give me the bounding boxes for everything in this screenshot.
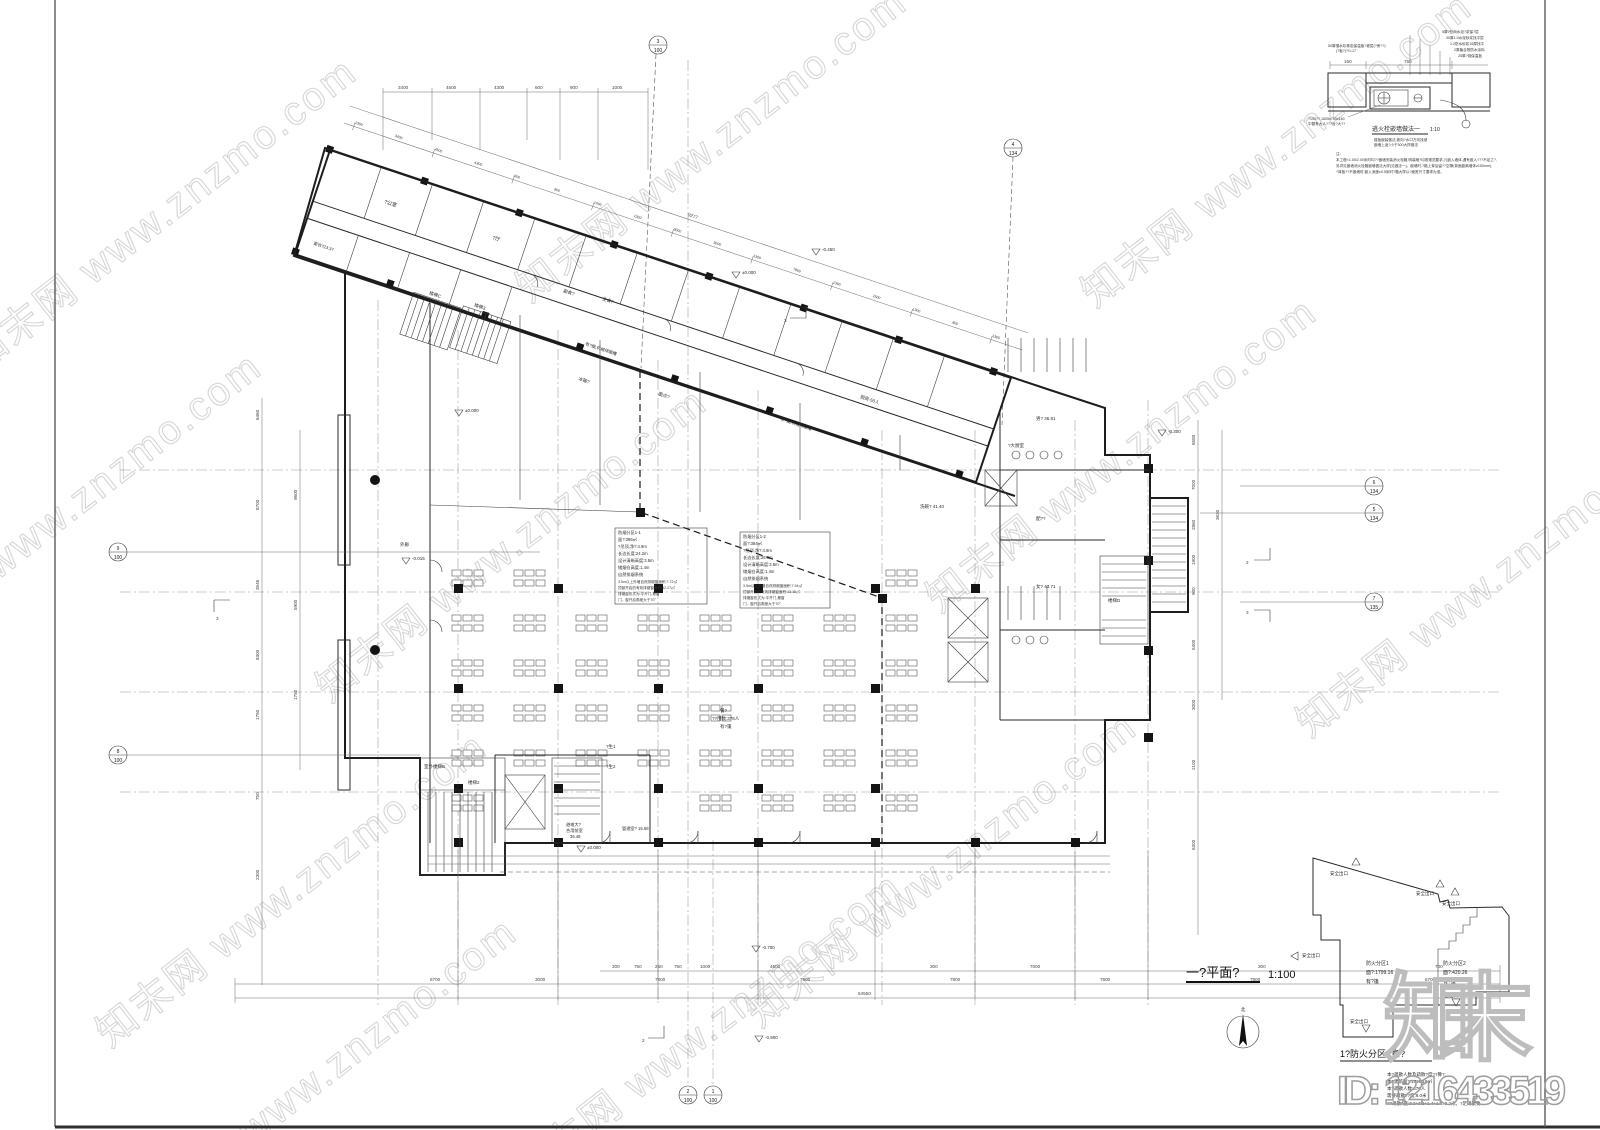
svg-text:750: 750 [1404,59,1412,64]
svg-text:9: 9 [117,546,120,552]
svg-text:面?:384㎡: 面?:384㎡ [743,540,763,547]
bubble: 3100 [649,36,667,54]
room-label: 男? 36.81 [1036,416,1056,422]
watermark-text: 知末网 www.znzmo.com [738,704,1145,1036]
svg-text:2100: 2100 [1191,759,1196,770]
svg-text:2860: 2860 [1191,519,1196,530]
room-label: 避难大? [566,821,582,828]
topleft-dim-labels: 3400 4500 4300 600 900 1000 [398,85,623,90]
svg-text:面?:386㎡: 面?:386㎡ [618,536,638,543]
room-label: 洗碗? 41.40 [920,503,945,510]
svg-text:储烟仓高度:1.4m: 储烟仓高度:1.4m [743,568,775,575]
svg-text:1: 1 [712,1089,715,1095]
svg-text:自然排烟系统: 自然排烟系统 [618,571,643,578]
svg-text:门、窗开启角度大于70°: 门、窗开启角度大于70° [618,597,656,602]
svg-text:30厚1:3水泥砂浆找平层: 30厚1:3水泥砂浆找平层 [1446,35,1484,40]
svg-text:冰箱?: 冰箱? [577,375,591,385]
svg-text:100: 100 [709,1098,718,1104]
svg-text:2600: 2600 [872,294,881,300]
detail-title: 逃火栓嵌墙做法一 1:10 [1372,125,1440,134]
svg-text:4300: 4300 [474,161,483,167]
svg-text:?吊顶,净?:4.9m: ?吊顶,净?:4.9m [618,543,647,550]
svg-text:100: 100 [114,555,123,561]
znzmo-logo: 知末 [1383,966,1533,1073]
svg-text:7: 7 [1373,596,1376,602]
svg-text:300: 300 [930,964,938,969]
overall-dim: 54550 [858,991,871,996]
svg-text:250: 250 [655,964,663,969]
svg-text:1300: 1300 [753,254,762,260]
svg-text:2: 2 [642,1038,645,1043]
svg-text:1000: 1000 [700,964,711,969]
svg-text:600: 600 [514,174,521,180]
bubble: 9100 [109,543,127,561]
svg-text:长边长度:28.8m: 长边长度:28.8m [743,554,773,561]
svg-text:750: 750 [634,964,642,969]
svg-text:楼梯3: 楼梯3 [473,301,487,311]
svg-text:750: 750 [674,964,682,969]
svg-text:安全出口: 安全出口 [1350,1018,1368,1025]
svg-text:2: 2 [1246,560,1249,565]
svg-text:?背板??不嵌墙时,嵌入深度≤0.5米时?箱大样以?面宽尺寸: ?背板??不嵌墙时,嵌入深度≤0.5米时?箱大样以?面宽尺寸要求为准。 [1336,169,1444,174]
room-label: ?公室 [383,198,397,209]
svg-text:有?篷: 有?篷 [720,723,732,730]
svg-text:3546: 3546 [255,579,260,590]
svg-text:安全出口: 安全出口 [1330,870,1348,877]
svg-text:5: 5 [1373,507,1376,513]
svg-text:-0.015: -0.015 [412,556,425,561]
room-label: 管理室? 15.68 [622,825,649,832]
svg-text:600: 600 [535,85,543,90]
svg-text:1300: 1300 [992,334,1001,340]
bubble: 6134 [1365,477,1383,495]
svg-text:顶部开启的有效排烟窗面积:12.27㎡: 顶部开启的有效排烟窗面积:12.27㎡ [618,585,675,590]
svg-text:900: 900 [554,187,561,193]
top-dim-labels: 13003400 45004300 600900 16001300 300030… [354,103,1006,341]
svg-text:50厚憎水珍珠岩保温板?坡层(?房??): 50厚憎水珍珠岩保温板?坡层(?房??) [1328,43,1386,48]
room-label: 更衣?23.37 [312,240,335,254]
svg-text:7000: 7000 [1030,964,1041,969]
svg-text:6300: 6300 [1191,839,1196,850]
bubble: 1100 [704,1086,722,1104]
svg-text:8700: 8700 [255,499,260,510]
room-label: 女? 43.71 [1036,583,1056,590]
svg-text:注:: 注: [1336,151,1341,156]
svg-text:25厚?烧保温板: 25厚?烧保温板 [1458,53,1482,58]
svg-text:4500: 4500 [434,147,443,153]
svg-text:储烟仓高度:1.4m: 储烟仓高度:1.4m [618,564,650,571]
svg-text:900: 900 [1191,587,1196,595]
svg-text:防烟分区1-2: 防烟分区1-2 [743,533,766,540]
svg-text:4500: 4500 [446,85,457,90]
svg-text:3630: 3630 [1215,509,1220,520]
svg-text:1750: 1750 [255,709,260,720]
svg-text:3000: 3000 [713,241,722,247]
bubble: 8100 [109,746,127,764]
svg-text:2: 2 [687,1089,690,1095]
svg-text:100: 100 [114,758,123,764]
room-label: ?生1 [606,743,616,749]
svg-text:7800: 7800 [1100,977,1111,982]
svg-text:1300: 1300 [832,281,841,287]
svg-text:8300: 8300 [255,649,260,660]
svg-text:-0.900: -0.900 [765,1035,778,1040]
svg-text:6700: 6700 [430,977,441,982]
room-label: 36.48 [570,834,581,839]
detail-note: 楼板嵌装做法,坡向?水口方向找坡 [1374,137,1428,142]
room-label: ?生2 [606,763,616,769]
svg-text:6580: 6580 [1191,434,1196,445]
svg-text:3.5m以上外墙自然排烟窗面积:7.72㎡: 3.5m以上外墙自然排烟窗面积:7.72㎡ [618,579,678,584]
wing-stairs [400,292,511,363]
svg-text:7800: 7800 [793,267,802,273]
right-dim-labels: 6580 7000 2860 1900 900 5400 3000 2100 6… [1191,434,1220,850]
svg-text:-0.450: -0.450 [822,247,835,252]
bubble: 5134 [1365,504,1383,522]
svg-text:7000: 7000 [1191,479,1196,490]
svg-text:135: 135 [1370,605,1379,611]
svg-text:?吊顶,净?:4.9m: ?吊顶,净?:4.9m [743,547,772,554]
svg-text:设计清晰高度:3.5m: 设计清晰高度:3.5m [618,557,654,564]
svg-text:1900: 1900 [1191,554,1196,565]
svg-text:1750: 1750 [293,689,298,700]
svg-text:??用数:376人: ??用数:376人 [712,715,740,722]
watermark-text: 知末网 www.znzmo.com [1288,414,1600,746]
svg-text:外廊: 外廊 [400,541,409,548]
detail-paragraph: 注: 本工程<1.00/2.00米时均??嵌墙安装消火栓箱,明装暗?均按规范要求… [1336,151,1497,174]
svg-text:6460: 6460 [255,409,260,420]
svg-text:另详见嵌墙消火栓箱嵌墙做法大样(见做法一)。嵌墙时,?箱上背: 另详见嵌墙消火栓箱嵌墙做法大样(见做法一)。嵌墙时,?箱上背后留??空隙(背面距… [1336,163,1492,168]
svg-text:1:100: 1:100 [1268,969,1296,981]
room-label: ?大厨室 [1008,442,1025,449]
svg-text:一?平面?: 一?平面? [1186,965,1239,980]
svg-text:7800: 7800 [800,977,811,982]
svg-text:-0.300: -0.300 [1168,429,1181,434]
svg-text:134: 134 [1009,151,1018,157]
svg-text:3: 3 [216,616,219,621]
bubble: 2100 [679,1086,697,1104]
elevation-markers: ±0.000 ±0.000 -0.450 -0.015 -0.300 -0.70… [402,247,1181,1042]
svg-text:4500: 4500 [770,964,781,969]
svg-text:长边长度:24.2m: 长边长度:24.2m [618,550,648,557]
svg-text:安全出口: 安全出口 [1416,890,1434,897]
svg-text:750: 750 [255,792,260,800]
room-label: 合用前室 [566,827,583,834]
left-dim-labels: 6460 8700 3546 8300 1750 750 2300 9600 5… [255,409,298,880]
svg-text:自然排烟系统: 自然排烟系统 [743,575,768,582]
svg-text:排烟窗形式为:平开门,悬窗: 排烟窗形式为:平开门,悬窗 [743,595,785,600]
plan-title: 一?平面? 1:100 [1186,965,1296,983]
svg-text:8: 8 [117,749,120,755]
watermark-text: 知末网 www.znzmo.com [0,344,271,676]
svg-text:-0.700: -0.700 [762,945,775,950]
svg-text:9277: 9277 [687,212,699,220]
svg-text:100: 100 [684,1098,693,1104]
svg-text:顶部开启的有效排烟窗面积:13.16㎡: 顶部开启的有效排烟窗面积:13.16㎡ [743,589,800,594]
svg-text:(?板?)?/1:17: (?板?)?/1:17 [1336,48,1356,53]
svg-text:3000: 3000 [1191,699,1196,710]
room-label: 室外楼梯B [424,763,445,770]
svg-text:7800: 7800 [655,977,666,982]
svg-text:1300: 1300 [354,121,363,127]
svg-text:150: 150 [1344,59,1352,64]
svg-text:?100??,1805x700x160: ?100??,1805x700x160 [1308,117,1345,121]
svg-text:中替有大人???台?大??: 中替有大人???台?大?? [1308,121,1345,126]
svg-text:3000: 3000 [673,227,682,233]
svg-text:3000: 3000 [535,977,546,982]
svg-text:3.5m以上外墙自然排烟窗面积:7.94㎡: 3.5m以上外墙自然排烟窗面积:7.94㎡ [743,583,803,588]
svg-text:1300: 1300 [912,307,921,313]
east-stair [1150,498,1188,612]
svg-text:北: 北 [1241,1006,1246,1013]
watermark-text: 知末网 www.znzmo.com [503,864,910,1130]
svg-text:±0.000: ±0.000 [465,408,479,413]
svg-text:3: 3 [1246,610,1249,615]
svg-text:3: 3 [657,39,660,45]
svg-text:主食?: 主食? [601,295,615,305]
svg-text:防烟分区1-1: 防烟分区1-1 [618,529,641,536]
north-arrow: 北 [1227,1006,1259,1048]
svg-text:本工程<1.00/2.00米时均??嵌墙安装消火栓箱,明装暗: 本工程<1.00/2.00米时均??嵌墙安装消火栓箱,明装暗?均按规范要求,凡嵌… [1336,157,1497,162]
svg-text:300: 300 [612,964,620,969]
svg-text:2厚聚合物防水涂料: 2厚聚合物防水涂料 [1454,47,1485,52]
bubble: 4134 [1004,139,1022,157]
svg-text:逃火栓嵌墙做法一: 逃火栓嵌墙做法一 [1372,125,1420,133]
svg-text:3400: 3400 [394,134,403,140]
svg-text:100: 100 [654,48,663,54]
svg-text:安全出口: 安全出口 [1442,900,1460,907]
svg-text:800: 800 [952,321,959,327]
svg-text:7800: 7800 [950,977,961,982]
svg-text:900: 900 [570,85,578,90]
svg-text:300: 300 [1258,964,1266,969]
svg-text:3: 3 [784,318,787,323]
svg-text:设计清晰高度:3.5m: 设计清晰高度:3.5m [743,561,779,568]
svg-text:餐?: 餐? [720,707,727,714]
svg-text:±0.000: ±0.000 [742,270,756,275]
bottom-dim-row1: 300 750 250 750 1000 4500 300 7000 300 7… [612,964,1443,969]
svg-text:5900: 5900 [293,599,298,610]
svg-text:有?篷: 有?篷 [1366,978,1379,985]
cad-sheet: 知末网 www.znzmo.com 知末网 www.znzmo.com 知末网 … [0,0,1600,1130]
svg-text:安全出口: 安全出口 [1302,952,1320,959]
svg-text:3400: 3400 [398,85,409,90]
svg-text:1:2防水砂浆15厚找平: 1:2防水砂浆15厚找平 [1450,41,1485,46]
svg-text:134: 134 [1370,489,1379,495]
svg-text:5厚?丝网水泥?浆保?层: 5厚?丝网水泥?浆保?层 [1442,29,1479,34]
watermark-text: 知末网 www.znzmo.com [118,909,525,1130]
svg-text:4: 4 [1012,142,1015,148]
svg-text:门、窗开启角度大于70°: 门、窗开启角度大于70° [743,601,781,606]
svg-text:134: 134 [1370,516,1379,522]
room-label: 楼梯D [1108,597,1121,604]
dimension-lines: 300 750 250 750 1000 4500 300 7000 300 7… [235,85,1500,1003]
svg-text:6: 6 [1373,480,1376,486]
svg-text:排烟窗形式为:平开门,悬窗: 排烟窗形式为:平开门,悬窗 [618,591,660,596]
smoke-zone-box-2: 防烟分区1-2 面?:384㎡ ?吊顶,净?:4.9m 长边长度:28.8m 设… [740,532,830,608]
room-label: ?厅 [491,235,500,243]
detail-note: 嵌墙上返?小于300大样做法 [1374,142,1418,147]
svg-text:±0.000: ±0.000 [587,845,601,850]
room-label: 楼梯2 [468,779,480,786]
floor-plan-drawing: 知末网 www.znzmo.com 知末网 www.znzmo.com 知末网 … [0,0,1600,1130]
svg-text:5400: 5400 [1191,639,1196,650]
svg-text:4300: 4300 [494,85,505,90]
bubble: 7135 [1365,593,1383,611]
svg-text:9600: 9600 [293,489,298,500]
svg-text:1:10: 1:10 [1430,127,1440,133]
asset-id: ID: 1216433519 [1337,1069,1567,1113]
svg-text:1000: 1000 [612,85,623,90]
watermark-text: 知末网 www.znzmo.com [508,0,915,311]
svg-text:2300: 2300 [255,869,260,880]
